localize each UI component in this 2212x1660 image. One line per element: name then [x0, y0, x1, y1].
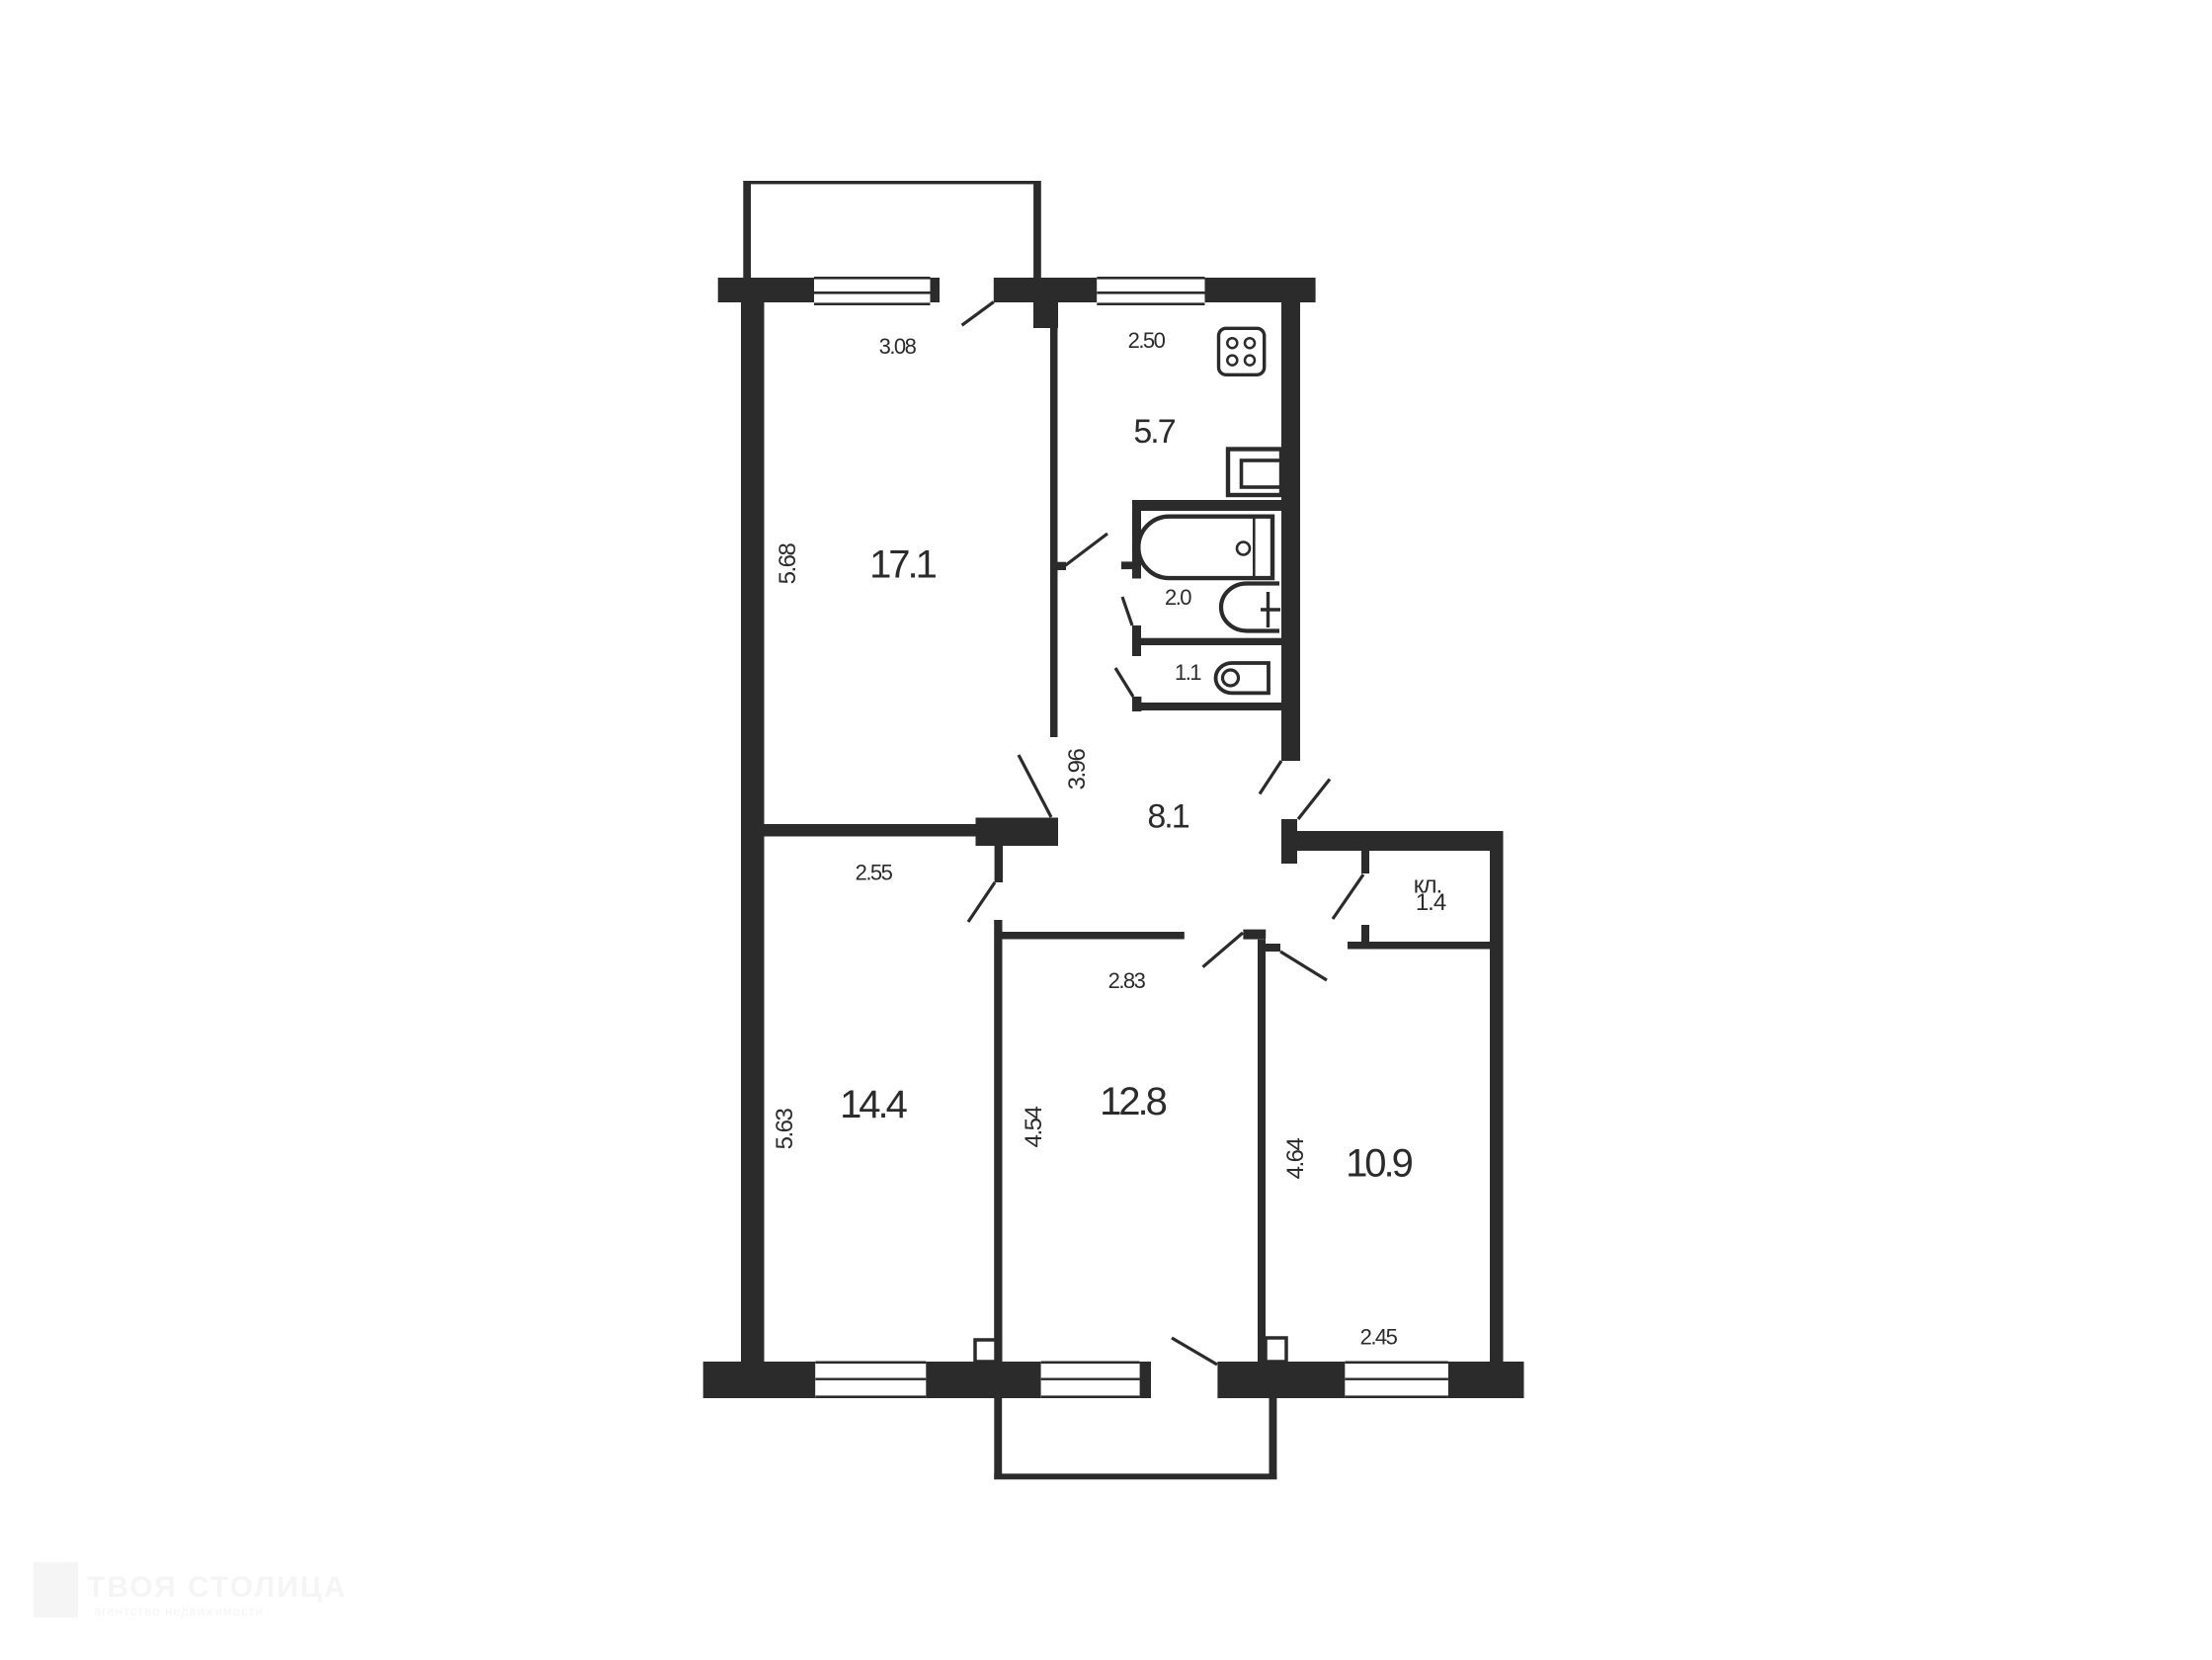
svg-text:1.1: 1.1: [1175, 660, 1201, 685]
svg-text:1.4: 1.4: [1416, 889, 1446, 916]
svg-text:4.64: 4.64: [1282, 1137, 1309, 1179]
svg-text:12.8: 12.8: [1100, 1080, 1167, 1123]
svg-text:2.50: 2.50: [1128, 328, 1166, 353]
svg-text:3.08: 3.08: [879, 334, 917, 359]
svg-text:5.7: 5.7: [1133, 413, 1175, 451]
svg-text:3.96: 3.96: [1064, 748, 1091, 789]
svg-text:5.63: 5.63: [772, 1108, 798, 1149]
svg-text:17.1: 17.1: [869, 543, 937, 587]
svg-text:ТВОЯ СТОЛИЦА: ТВОЯ СТОЛИЦА: [87, 1571, 347, 1604]
svg-text:агентство недвижимости: агентство недвижимости: [94, 1604, 264, 1618]
svg-text:2.45: 2.45: [1360, 1325, 1398, 1350]
svg-text:2.55: 2.55: [856, 861, 893, 885]
svg-text:4.54: 4.54: [1021, 1106, 1047, 1147]
svg-text:8.1: 8.1: [1147, 798, 1188, 836]
svg-text:2.83: 2.83: [1108, 968, 1146, 993]
svg-text:2.0: 2.0: [1165, 585, 1191, 610]
svg-text:14.4: 14.4: [840, 1083, 908, 1126]
svg-text:10.9: 10.9: [1346, 1142, 1413, 1186]
svg-text:5.68: 5.68: [775, 542, 801, 584]
